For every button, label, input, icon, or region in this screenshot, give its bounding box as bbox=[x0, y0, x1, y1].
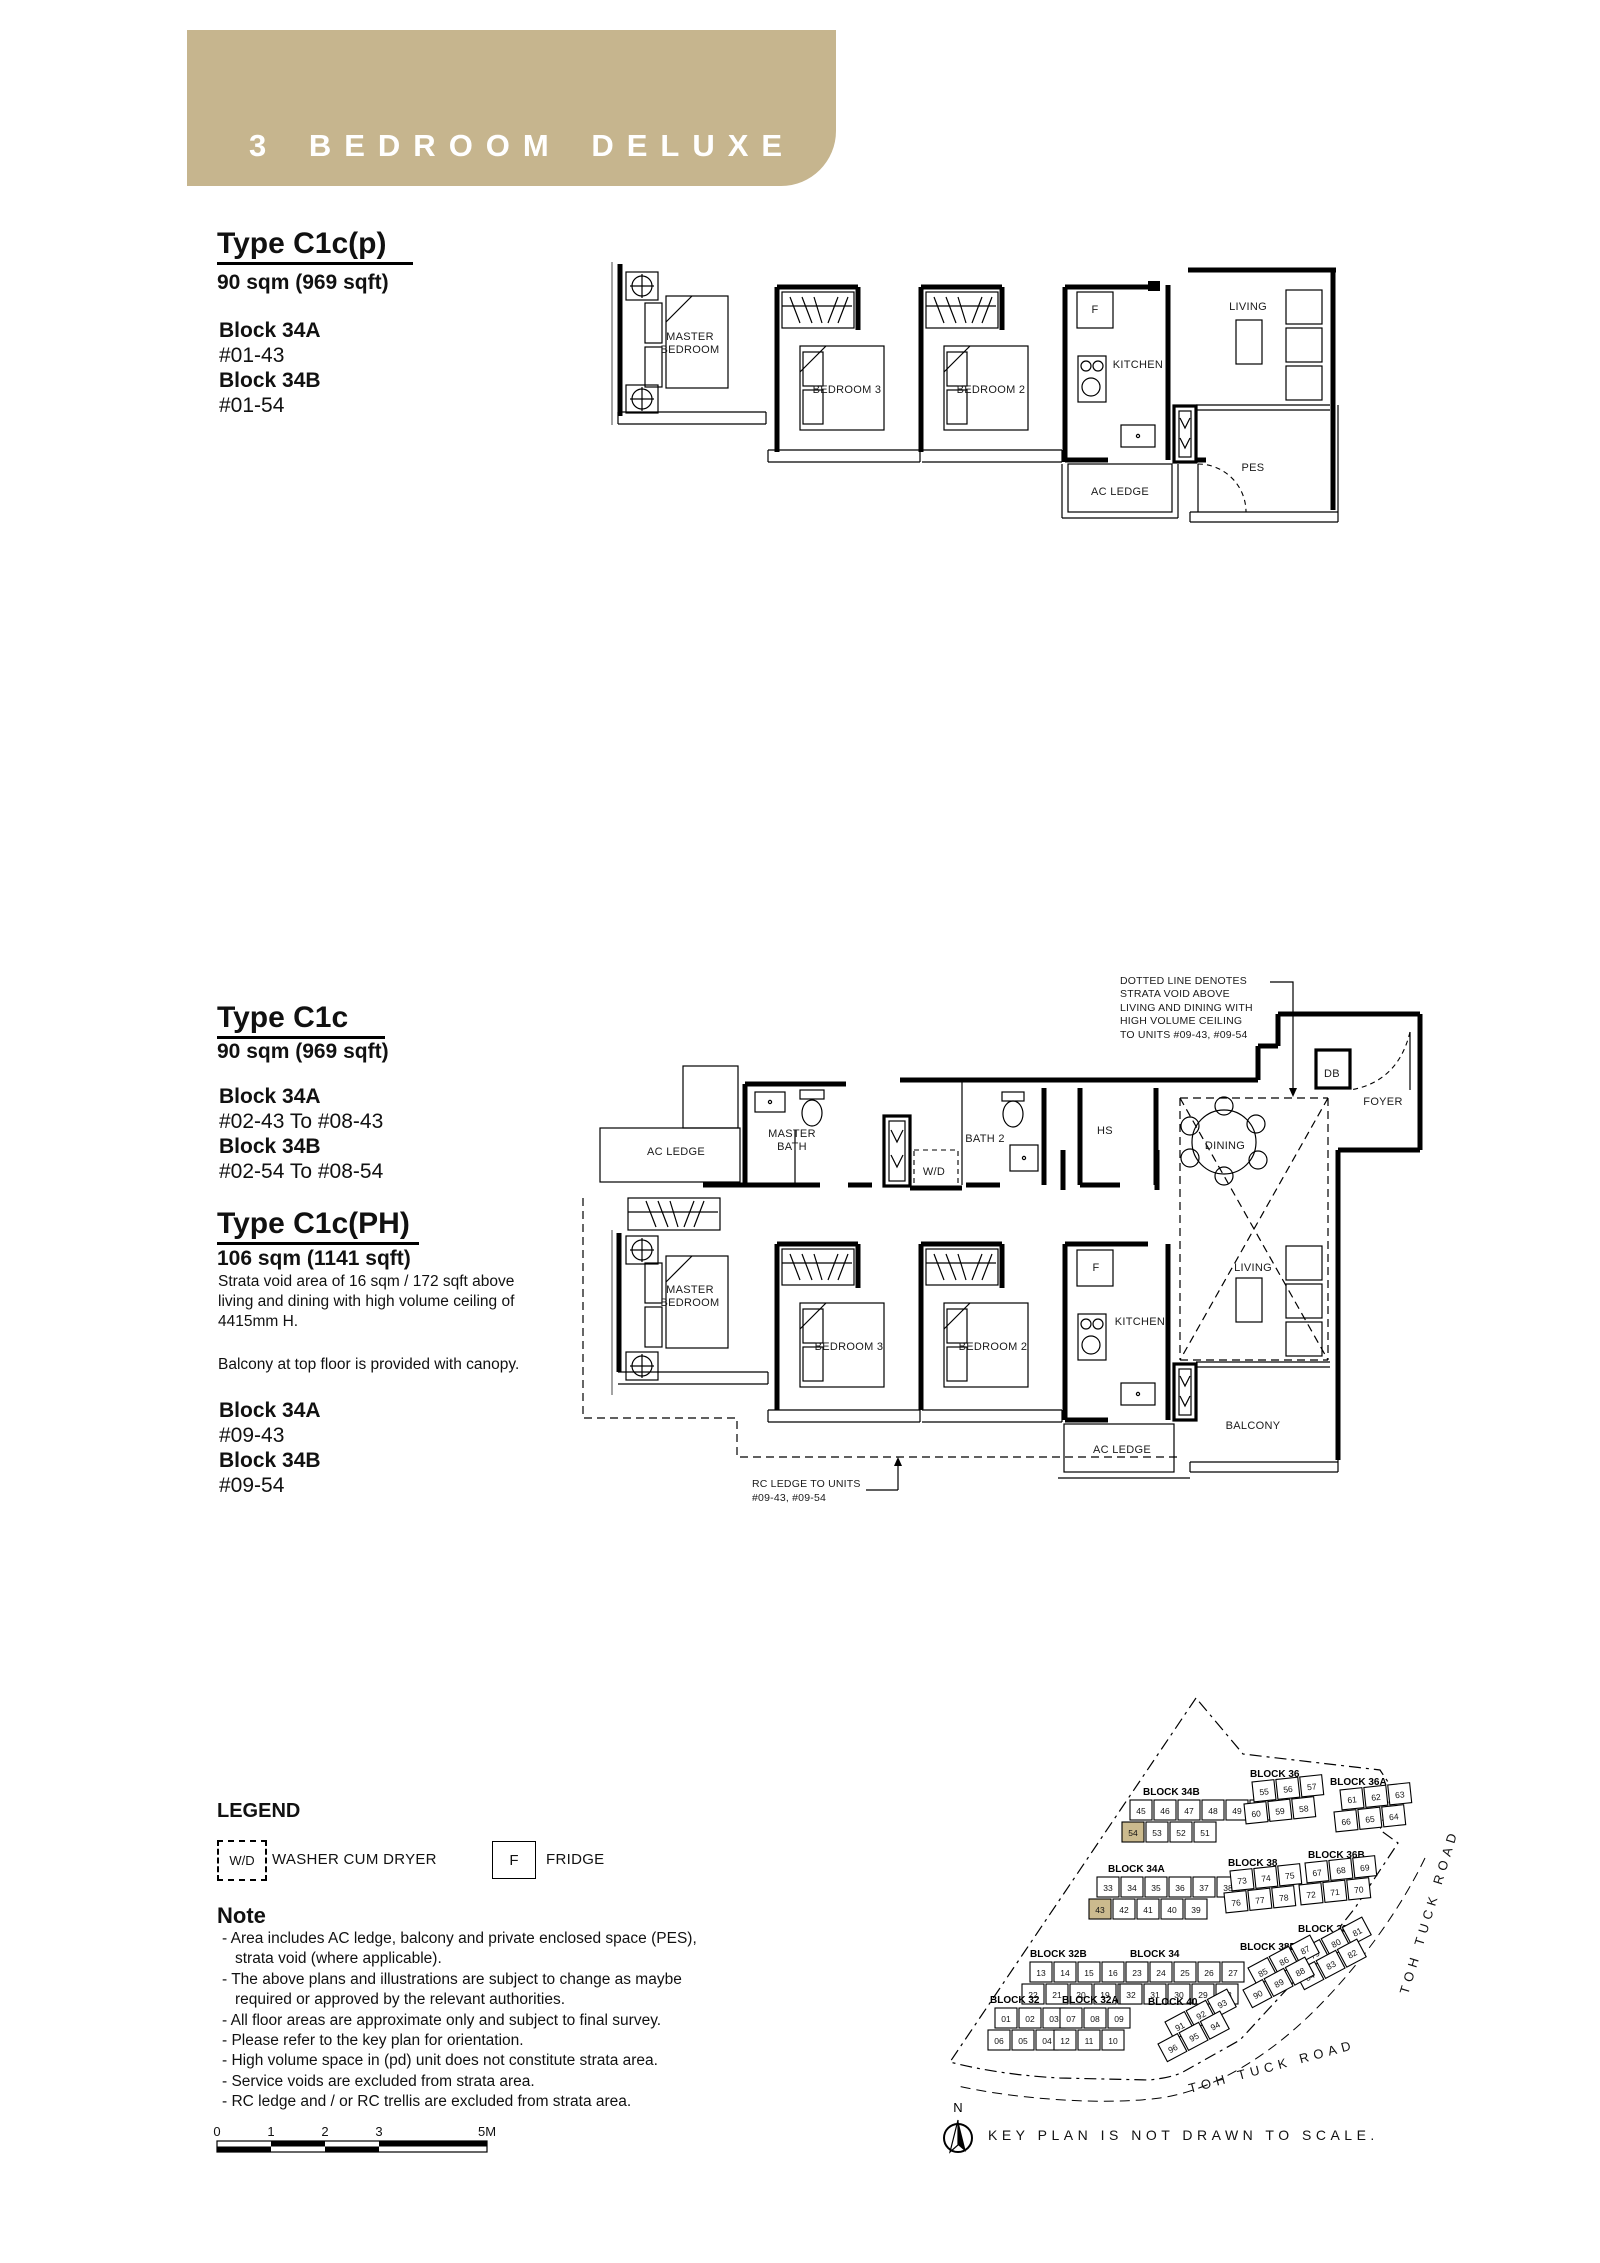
desc-line: living and dining with high volume ceili… bbox=[218, 1292, 514, 1312]
keyplan-unit-number: 40 bbox=[1167, 1905, 1177, 1915]
note-list: - Area includes AC ledge, balcony and pr… bbox=[222, 1929, 742, 2113]
room-label-ac-ledge: AC LEDGE bbox=[1082, 486, 1158, 499]
room-label-db: DB bbox=[1318, 1068, 1346, 1081]
keyplan-block-label: BLOCK 34A bbox=[1108, 1864, 1165, 1875]
fridge-legend-symbol: F bbox=[492, 1841, 536, 1879]
annotation-line: TO UNITS #09-43, #09-54 bbox=[1120, 1029, 1290, 1042]
keyplan-unit-number: 49 bbox=[1232, 1806, 1242, 1816]
room-label-master-bath: MASTER BATH bbox=[762, 1128, 822, 1153]
keyplan-block-block-38: BLOCK 38737475767778 bbox=[1224, 1858, 1302, 1913]
keyplan-unit-number: 65 bbox=[1365, 1814, 1376, 1825]
keyplan-unit-number: 55 bbox=[1259, 1786, 1270, 1797]
room-label-living: LIVING bbox=[1220, 301, 1276, 314]
block-units: #02-54 To #08-54 bbox=[219, 1159, 383, 1184]
keyplan-unit-number: 52 bbox=[1176, 1828, 1186, 1838]
keyplan-unit-number: 45 bbox=[1136, 1806, 1146, 1816]
stove-symbol bbox=[1078, 1314, 1106, 1360]
desc-line: 4415mm H. bbox=[218, 1312, 514, 1332]
unit-blocks-c1cp: Block 34A #01-43 Block 34B #01-54 bbox=[219, 318, 321, 418]
road-label-toh-tuck: TOH TUCK ROAD bbox=[1187, 2037, 1357, 2096]
room-label-master-bedroom: MASTER BEDROOM bbox=[652, 1284, 728, 1309]
keyplan-unit-number: 16 bbox=[1108, 1968, 1118, 1978]
fridge-legend-label: FRIDGE bbox=[546, 1851, 604, 1868]
keyplan-unit-number: 71 bbox=[1330, 1887, 1341, 1898]
unit-area-c1c: 90 sqm (969 sqft) bbox=[217, 1040, 389, 1064]
block-units: #09-54 bbox=[219, 1473, 321, 1498]
scale-tick: 0 bbox=[213, 2124, 220, 2139]
unit-title-c1cph: Type C1c(PH) bbox=[217, 1208, 419, 1245]
note-line: required or approved by the relevant aut… bbox=[222, 1990, 742, 2010]
keyplan-unit-number: 06 bbox=[994, 2036, 1004, 2046]
sofa-symbol bbox=[1286, 290, 1322, 400]
room-label-bath2: BATH 2 bbox=[958, 1133, 1012, 1146]
keyplan-unit-number: 72 bbox=[1306, 1889, 1317, 1900]
keyplan-unit-number: 54 bbox=[1128, 1828, 1138, 1838]
keyplan-unit-number: 11 bbox=[1085, 2036, 1094, 2046]
wardrobe-symbol bbox=[782, 1249, 854, 1285]
keyplan-block-label: BLOCK 32B bbox=[1030, 1949, 1087, 1960]
keyplan-unit-number: 01 bbox=[1001, 2014, 1011, 2024]
keyplan-unit-number: 46 bbox=[1160, 1806, 1170, 1816]
keyplan-unit-number: 70 bbox=[1354, 1884, 1365, 1895]
keyplan-unit-number: 04 bbox=[1042, 2036, 1052, 2046]
bathroom-fixtures bbox=[1002, 1092, 1038, 1171]
note-line: - High volume space in (pd) unit does no… bbox=[222, 2051, 742, 2071]
unit-blocks-c1cph: Block 34A #09-43 Block 34B #09-54 bbox=[219, 1398, 321, 1498]
keyplan-unit-number: 56 bbox=[1283, 1784, 1294, 1795]
keyplan-block-block-32a: BLOCK 32A070809121110 bbox=[1054, 1995, 1130, 2050]
block-name: Block 34A bbox=[219, 1398, 321, 1423]
unit-title-c1c: Type C1c bbox=[217, 1002, 385, 1039]
fridge-label: F bbox=[1089, 1262, 1103, 1275]
room-label-master-bedroom: MASTER BEDROOM bbox=[652, 331, 728, 356]
stove-symbol bbox=[1078, 356, 1106, 402]
keyplan-unit-number: 10 bbox=[1108, 2036, 1118, 2046]
room-label-kitchen: KITCHEN bbox=[1107, 359, 1169, 372]
desc-line: Strata void area of 16 sqm / 172 sqft ab… bbox=[218, 1272, 514, 1292]
keyplan-block-block-36b: BLOCK 36B676869727170 bbox=[1299, 1850, 1377, 1905]
floor-plan-c1c-drawing bbox=[560, 940, 1440, 1510]
block-name: Block 34A bbox=[219, 318, 321, 343]
note-title: Note bbox=[217, 1903, 266, 1929]
keyplan-block-block-36: BLOCK 36555657605958 bbox=[1244, 1769, 1324, 1824]
keyplan-unit-number: 12 bbox=[1060, 2036, 1070, 2046]
annotation-line: #09-43, #09-54 bbox=[752, 1491, 882, 1505]
keyplan-unit-number: 26 bbox=[1204, 1968, 1214, 1978]
keyplan-unit-number: 77 bbox=[1255, 1895, 1266, 1906]
keyplan-unit-number: 34 bbox=[1127, 1883, 1137, 1893]
wardrobe-symbol bbox=[926, 292, 998, 328]
key-plan: BLOCK 34B45464748495054535251BLOCK 36555… bbox=[940, 1690, 1480, 2150]
fridge-label: F bbox=[1088, 304, 1102, 317]
block-units: #01-54 bbox=[219, 393, 321, 418]
ac-ledge-area bbox=[600, 1066, 740, 1182]
service-shaft-symbol bbox=[884, 1116, 910, 1186]
rc-ledge-annotation: RC LEDGE TO UNITS #09-43, #09-54 bbox=[752, 1477, 882, 1505]
floor-plan-c1cp-drawing bbox=[600, 250, 1360, 550]
block-name: Block 34A bbox=[219, 1084, 383, 1109]
washer-dryer-legend-label: WASHER CUM DRYER bbox=[272, 1851, 437, 1868]
keyplan-block-label: BLOCK 32 bbox=[990, 1995, 1040, 2006]
keyplan-block-label: BLOCK 40 bbox=[1148, 1997, 1198, 2008]
room-label-ac-ledge: AC LEDGE bbox=[1084, 1444, 1160, 1457]
entry-door-arc bbox=[1350, 1032, 1410, 1090]
note-line: - Please refer to the key plan for orien… bbox=[222, 2031, 742, 2051]
keyplan-unit-number: 29 bbox=[1198, 1990, 1208, 2000]
keyplan-unit-number: 63 bbox=[1395, 1789, 1406, 1800]
wardrobe-symbol bbox=[628, 1198, 720, 1230]
room-label-hs: HS bbox=[1092, 1125, 1118, 1138]
keyplan-unit-number: 43 bbox=[1095, 1905, 1105, 1915]
keyplan-unit-number: 21 bbox=[1052, 1990, 1062, 2000]
room-label-bedroom3: BEDROOM 3 bbox=[809, 384, 885, 397]
scale-tick: 3 bbox=[375, 2124, 382, 2139]
service-shaft-symbol bbox=[1174, 1364, 1196, 1420]
annotation-line: LIVING AND DINING WITH bbox=[1120, 1002, 1290, 1015]
room-label-living: LIVING bbox=[1225, 1262, 1281, 1275]
note-line: - Service voids are excluded from strata… bbox=[222, 2072, 742, 2092]
sink-symbol bbox=[1121, 425, 1155, 447]
scale-tick: 2 bbox=[321, 2124, 328, 2139]
keyplan-block-label: BLOCK 34 bbox=[1130, 1949, 1180, 1960]
room-label-foyer: FOYER bbox=[1354, 1096, 1412, 1109]
coffee-table-symbol bbox=[1236, 1278, 1262, 1322]
strata-void-annotation: DOTTED LINE DENOTES STRATA VOID ABOVE LI… bbox=[1120, 975, 1290, 1042]
leader-arrowhead bbox=[1289, 1088, 1297, 1097]
keyplan-unit-number: 48 bbox=[1208, 1806, 1218, 1816]
keyplan-unit-number: 13 bbox=[1036, 1968, 1046, 1978]
keyplan-unit-number: 42 bbox=[1119, 1905, 1129, 1915]
page-title: 3 BEDROOM DELUXE bbox=[187, 128, 795, 186]
north-label: N bbox=[953, 2100, 962, 2115]
keyplan-unit-number: 74 bbox=[1261, 1873, 1272, 1884]
keyplan-unit-number: 08 bbox=[1090, 2014, 1100, 2024]
keyplan-unit-number: 24 bbox=[1156, 1968, 1166, 1978]
room-label-bedroom3: BEDROOM 3 bbox=[811, 1341, 887, 1354]
service-shaft-symbol bbox=[1174, 406, 1196, 462]
keyplan-unit-number: 76 bbox=[1231, 1897, 1242, 1908]
keyplan-unit-number: 51 bbox=[1200, 1828, 1210, 1838]
keyplan-unit-number: 66 bbox=[1341, 1816, 1352, 1827]
washer-dryer-label: W/D bbox=[918, 1166, 950, 1179]
room-label-bedroom2: BEDROOM 2 bbox=[955, 1341, 1031, 1354]
unit-area-c1cp: 90 sqm (969 sqft) bbox=[217, 271, 389, 295]
title-banner: 3 BEDROOM DELUXE bbox=[187, 30, 836, 186]
keyplan-unit-number: 60 bbox=[1251, 1808, 1262, 1819]
keyplan-block-label: BLOCK 34B bbox=[1143, 1787, 1200, 1798]
annotation-line: HIGH VOLUME CEILING bbox=[1120, 1015, 1290, 1028]
leader-arrowhead bbox=[894, 1457, 902, 1466]
keyplan-unit-number: 05 bbox=[1018, 2036, 1028, 2046]
room-label-dining: DINING bbox=[1199, 1140, 1251, 1153]
brochure-page: 3 BEDROOM DELUXE Type C1c(p) 90 sqm (969… bbox=[0, 0, 1600, 2263]
keyplan-unit-number: 47 bbox=[1184, 1806, 1194, 1816]
keyplan-block-block-38b: BLOCK 38B858687908988 bbox=[1240, 1935, 1319, 2008]
keyplan-caption: KEY PLAN IS NOT DRAWN TO SCALE. bbox=[988, 2127, 1379, 2143]
wardrobe-symbol bbox=[926, 1249, 998, 1285]
keyplan-unit-number: 58 bbox=[1299, 1803, 1310, 1814]
coffee-table-symbol bbox=[1236, 320, 1262, 364]
north-compass: N bbox=[938, 2098, 982, 2160]
keyplan-unit-number: 33 bbox=[1103, 1883, 1113, 1893]
keyplan-block-label: BLOCK 32A bbox=[1062, 1995, 1119, 2006]
keyplan-unit-number: 36 bbox=[1175, 1883, 1185, 1893]
keyplan-unit-number: 09 bbox=[1114, 2014, 1124, 2024]
scale-bar: 0 1 2 3 5M bbox=[200, 2115, 520, 2160]
scale-tick: 1 bbox=[267, 2124, 274, 2139]
keyplan-unit-number: 25 bbox=[1180, 1968, 1190, 1978]
keyplan-unit-number: 69 bbox=[1360, 1862, 1371, 1873]
block-units: #01-43 bbox=[219, 343, 321, 368]
block-name: Block 34B bbox=[219, 1134, 383, 1159]
note-line: strata void (where applicable). bbox=[222, 1949, 742, 1969]
keyplan-unit-number: 15 bbox=[1084, 1968, 1094, 1978]
room-label-bedroom2: BEDROOM 2 bbox=[953, 384, 1029, 397]
wardrobe-symbol bbox=[782, 292, 854, 328]
unit-area-c1cph: 106 sqm (1141 sqft) bbox=[217, 1247, 411, 1271]
keyplan-unit-number: 73 bbox=[1237, 1875, 1248, 1886]
unit-blocks-c1c: Block 34A #02-43 To #08-43 Block 34B #02… bbox=[219, 1084, 383, 1184]
keyplan-unit-number: 57 bbox=[1307, 1781, 1318, 1792]
keyplan-unit-number: 02 bbox=[1025, 2014, 1035, 2024]
keyplan-unit-number: 23 bbox=[1132, 1968, 1142, 1978]
keyplan-block-block-36a: BLOCK 36A616263666564 bbox=[1330, 1777, 1412, 1832]
road-label-toh-tuck: TOH TUCK ROAD bbox=[1397, 1827, 1462, 1996]
block-name: Block 34B bbox=[219, 368, 321, 393]
note-line: - Area includes AC ledge, balcony and pr… bbox=[222, 1929, 742, 1949]
keyplan-unit-number: 07 bbox=[1066, 2014, 1076, 2024]
keyplan-unit-number: 03 bbox=[1049, 2014, 1059, 2024]
annotation-line: DOTTED LINE DENOTES bbox=[1120, 975, 1290, 988]
annotation-line: STRATA VOID ABOVE bbox=[1120, 988, 1290, 1001]
keyplan-block-block-34a: BLOCK 34A3334353637384342414039 bbox=[1089, 1864, 1239, 1919]
keyplan-block-block-40: BLOCK 40919293969594 bbox=[1148, 1989, 1236, 2062]
keyplan-unit-number: 59 bbox=[1275, 1806, 1286, 1817]
keyplan-unit-number: 14 bbox=[1060, 1968, 1070, 1978]
keyplan-unit-number: 39 bbox=[1191, 1905, 1201, 1915]
note-line: - The above plans and illustrations are … bbox=[222, 1970, 742, 1990]
block-name: Block 34B bbox=[219, 1448, 321, 1473]
strata-void-dashed bbox=[1180, 1098, 1328, 1360]
keyplan-unit-number: 64 bbox=[1389, 1811, 1400, 1822]
room-label-ac-ledge: AC LEDGE bbox=[638, 1146, 714, 1159]
note-line: - RC ledge and / or RC trellis are exclu… bbox=[222, 2092, 742, 2112]
unit-title-c1cp: Type C1c(p) bbox=[217, 228, 413, 265]
canopy-note: Balcony at top floor is provided with ca… bbox=[218, 1355, 519, 1375]
room-label-balcony: BALCONY bbox=[1215, 1420, 1291, 1433]
keyplan-unit-number: 37 bbox=[1199, 1883, 1209, 1893]
keyplan-unit-number: 75 bbox=[1285, 1870, 1296, 1881]
keyplan-blocks: BLOCK 34B45464748495054535251BLOCK 36555… bbox=[988, 1769, 1412, 2062]
scale-tick: 5M bbox=[478, 2124, 496, 2139]
keyplan-unit-number: 53 bbox=[1152, 1828, 1162, 1838]
block-units: #02-43 To #08-43 bbox=[219, 1109, 383, 1134]
keyplan-unit-number: 78 bbox=[1279, 1892, 1290, 1903]
room-label-kitchen: KITCHEN bbox=[1108, 1316, 1172, 1329]
washer-dryer-legend-symbol: W/D bbox=[217, 1840, 267, 1881]
keyplan-unit-number: 27 bbox=[1228, 1968, 1238, 1978]
keyplan-unit-number: 68 bbox=[1336, 1865, 1347, 1876]
keyplan-unit-number: 61 bbox=[1347, 1794, 1358, 1805]
legend-title: LEGEND bbox=[217, 1800, 300, 1823]
keyplan-unit-number: 67 bbox=[1312, 1867, 1323, 1878]
strata-void-description: Strata void area of 16 sqm / 172 sqft ab… bbox=[218, 1272, 514, 1332]
note-line: - All floor areas are approximate only a… bbox=[222, 2011, 742, 2031]
keyplan-unit-number: 32 bbox=[1126, 1990, 1136, 2000]
room-label-pes: PES bbox=[1235, 462, 1271, 475]
keyplan-unit-number: 35 bbox=[1151, 1883, 1161, 1893]
keyplan-unit-number: 62 bbox=[1371, 1792, 1382, 1803]
sink-symbol bbox=[1121, 1383, 1155, 1405]
block-units: #09-43 bbox=[219, 1423, 321, 1448]
keyplan-unit-number: 41 bbox=[1143, 1905, 1153, 1915]
annotation-line: RC LEDGE TO UNITS bbox=[752, 1477, 882, 1491]
